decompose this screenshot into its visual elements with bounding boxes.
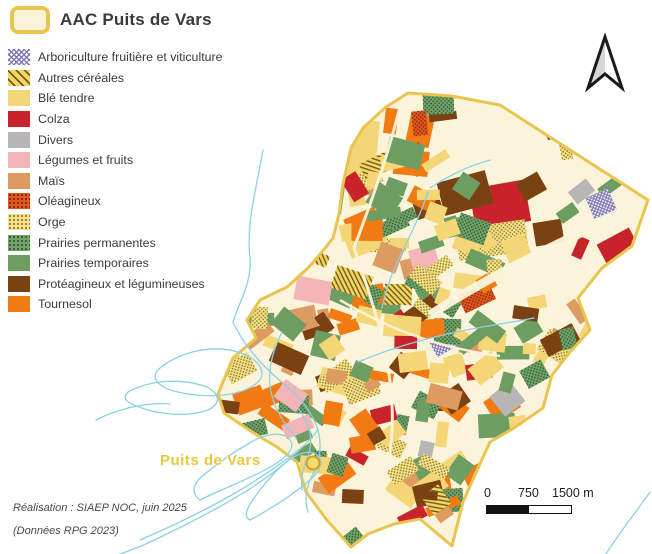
legend-swatch-icon [8,132,30,148]
legend-swatch-icon [8,152,30,168]
page-title: AAC Puits de Vars [60,10,212,30]
legend-item: Oléagineux [8,191,223,212]
legend-item-label: Orge [38,215,66,229]
legend-swatch-icon [8,214,30,230]
aac-boundary-swatch-icon [10,6,50,34]
legend-item: Maïs [8,171,223,192]
legend-item-label: Prairies permanentes [38,236,156,250]
legend: Arboriculture fruitière et viticultureAu… [8,47,223,315]
legend-item-label: Divers [38,133,73,147]
credits-line-2: (Données RPG 2023) [13,525,187,537]
well-marker [307,457,320,470]
legend-swatch-icon [8,49,30,65]
legend-item-label: Autres céréales [38,71,124,85]
legend-item: Autres céréales [8,68,223,89]
credits-line-1: Réalisation : SIAEP NOC, juin 2025 [13,502,187,514]
map-title-row: AAC Puits de Vars [10,6,212,34]
legend-swatch-icon [8,111,30,127]
scale-bar-rule [486,505,572,514]
legend-item-label: Légumes et fruits [38,153,133,167]
legend-swatch-icon [8,255,30,271]
scale-bar-ticks: 0 750 1500 m [482,486,602,502]
legend-item-label: Maïs [38,174,65,188]
legend-item: Légumes et fruits [8,150,223,171]
legend-swatch-icon [8,235,30,251]
credits: Réalisation : SIAEP NOC, juin 2025 (Donn… [13,502,187,548]
scale-tick-1500: 1500 m [552,486,594,500]
north-arrow-icon [583,33,627,93]
legend-item: Divers [8,129,223,150]
legend-swatch-icon [8,70,30,86]
legend-swatch-icon [8,90,30,106]
legend-item: Orge [8,212,223,233]
legend-swatch-icon [8,173,30,189]
legend-item: Blé tendre [8,88,223,109]
scale-tick-0: 0 [484,486,491,500]
legend-swatch-icon [8,296,30,312]
scale-tick-750: 750 [518,486,539,500]
map-page: AAC Puits de Vars Arboriculture fruitièr… [0,0,652,554]
scale-bar: 0 750 1500 m [482,486,602,514]
legend-item: Tournesol [8,294,223,315]
scale-bar-filled-half [487,506,529,513]
legend-item: Prairies permanentes [8,232,223,253]
legend-item-label: Oléagineux [38,194,101,208]
legend-item-label: Colza [38,112,70,126]
legend-swatch-icon [8,193,30,209]
legend-item-label: Protéagineux et légumineuses [38,277,205,291]
legend-item: Prairies temporaires [8,253,223,274]
legend-item: Protéagineux et légumineuses [8,274,223,295]
legend-item-label: Blé tendre [38,91,94,105]
place-label: Puits de Vars [160,452,261,469]
legend-item: Colza [8,109,223,130]
legend-item-label: Tournesol [38,297,92,311]
legend-item-label: Prairies temporaires [38,256,149,270]
legend-item-label: Arboriculture fruitière et viticulture [38,50,223,64]
legend-item: Arboriculture fruitière et viticulture [8,47,223,68]
legend-swatch-icon [8,276,30,292]
